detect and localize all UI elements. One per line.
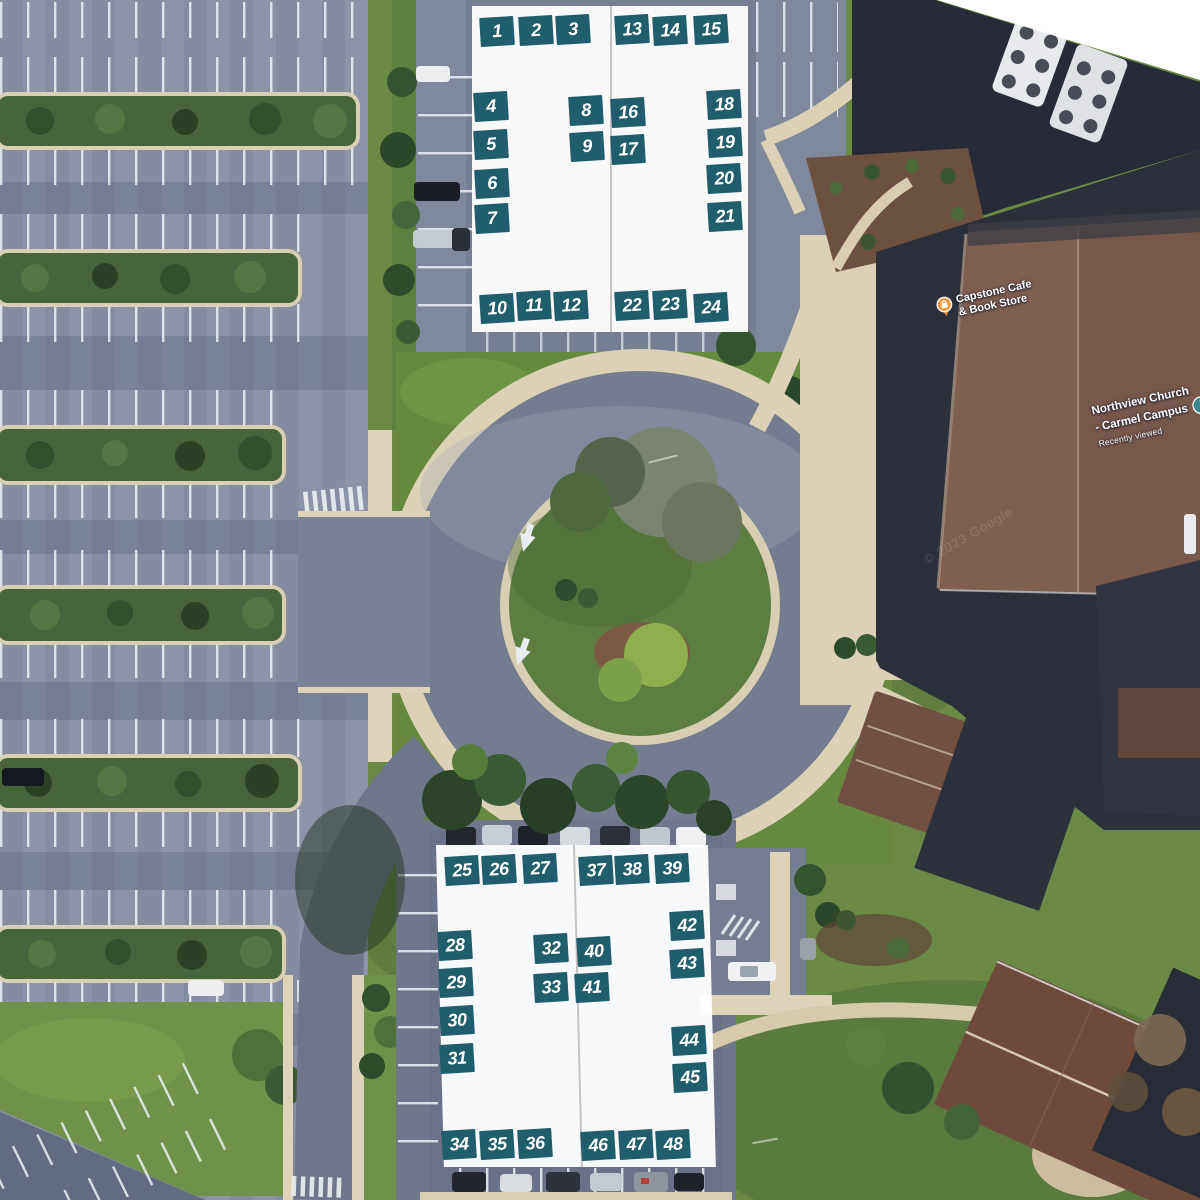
booth-badge-layer: 1231314154567891617181920211011122223242… — [0, 0, 1200, 1200]
booth-badge-33: 33 — [533, 971, 569, 1002]
booth-badge-18: 18 — [706, 88, 742, 119]
booth-badge-31: 31 — [439, 1042, 475, 1073]
booth-badge-10: 10 — [479, 292, 515, 323]
booth-badge-26: 26 — [481, 853, 517, 884]
booth-badge-16: 16 — [610, 96, 646, 127]
booth-badge-8: 8 — [568, 94, 604, 125]
booth-badge-43: 43 — [669, 947, 705, 978]
store-pin-icon — [934, 295, 955, 319]
booth-badge-36: 36 — [517, 1127, 553, 1158]
booth-badge-3: 3 — [555, 13, 591, 44]
booth-badge-48: 48 — [655, 1128, 691, 1159]
booth-badge-30: 30 — [439, 1004, 475, 1035]
booth-badge-22: 22 — [614, 289, 650, 320]
booth-badge-17: 17 — [610, 133, 646, 164]
booth-badge-29: 29 — [438, 966, 474, 997]
booth-badge-27: 27 — [522, 852, 558, 883]
booth-badge-40: 40 — [576, 935, 612, 966]
booth-badge-46: 46 — [580, 1129, 616, 1160]
booth-badge-39: 39 — [654, 852, 690, 883]
booth-badge-15: 15 — [693, 13, 729, 44]
booth-badge-14: 14 — [652, 14, 688, 45]
recently-viewed-icon — [1190, 394, 1200, 417]
booth-badge-44: 44 — [671, 1024, 707, 1055]
booth-badge-5: 5 — [473, 128, 509, 159]
booth-badge-41: 41 — [574, 971, 610, 1002]
booth-badge-47: 47 — [618, 1128, 654, 1159]
booth-badge-2: 2 — [518, 14, 554, 45]
booth-badge-19: 19 — [707, 126, 743, 157]
booth-badge-24: 24 — [693, 291, 729, 322]
booth-badge-6: 6 — [474, 167, 510, 198]
booth-badge-28: 28 — [437, 929, 473, 960]
booth-badge-1: 1 — [479, 15, 515, 46]
booth-badge-38: 38 — [614, 853, 650, 884]
booth-badge-20: 20 — [706, 162, 742, 193]
campus-booth-map: 1231314154567891617181920211011122223242… — [0, 0, 1200, 1200]
booth-badge-25: 25 — [444, 854, 480, 885]
booth-badge-32: 32 — [533, 932, 569, 963]
booth-badge-12: 12 — [553, 289, 589, 320]
booth-badge-4: 4 — [473, 90, 509, 121]
booth-badge-21: 21 — [707, 200, 743, 231]
booth-badge-13: 13 — [614, 13, 650, 44]
booth-badge-23: 23 — [652, 288, 688, 319]
booth-badge-34: 34 — [441, 1128, 477, 1159]
booth-badge-45: 45 — [672, 1061, 708, 1092]
booth-badge-7: 7 — [474, 202, 510, 233]
booth-badge-11: 11 — [516, 289, 552, 320]
booth-badge-9: 9 — [569, 130, 605, 161]
booth-badge-35: 35 — [479, 1128, 515, 1159]
booth-badge-42: 42 — [669, 909, 705, 940]
booth-badge-37: 37 — [578, 854, 614, 885]
